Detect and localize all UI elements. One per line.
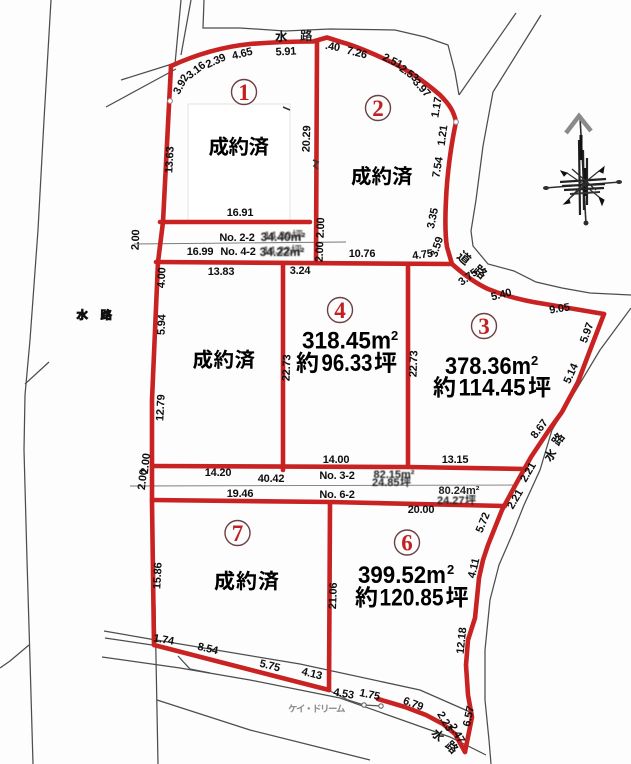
svg-text:120.85: 120.85	[380, 585, 444, 612]
svg-text:10.76: 10.76	[349, 248, 376, 260]
svg-text:5.94: 5.94	[155, 313, 168, 335]
svg-text:2.00: 2.00	[130, 229, 143, 250]
svg-text:19.46: 19.46	[227, 488, 254, 500]
svg-text:114.45: 114.45	[459, 375, 526, 402]
svg-text:14.00: 14.00	[323, 454, 350, 466]
svg-text:20.00: 20.00	[408, 504, 435, 516]
svg-text:6: 6	[401, 531, 413, 556]
svg-text:14.30: 14.30	[264, 230, 292, 242]
svg-text:2.00: 2.00	[314, 241, 327, 262]
svg-text:3: 3	[478, 314, 490, 339]
svg-text:40.42: 40.42	[258, 473, 285, 485]
svg-text:No. 4-2: No. 4-2	[220, 246, 255, 258]
svg-text:13.83: 13.83	[208, 266, 235, 278]
svg-text:No. 3-2: No. 3-2	[319, 470, 354, 482]
svg-text:16.91: 16.91	[227, 207, 254, 219]
svg-text:2: 2	[447, 562, 454, 577]
svg-text:21.06: 21.06	[327, 582, 340, 609]
svg-text:96.33: 96.33	[322, 350, 373, 377]
svg-text:3.24: 3.24	[290, 265, 312, 277]
svg-text:No. 6-2: No. 6-2	[319, 489, 354, 501]
svg-text:13.63: 13.63	[163, 146, 176, 173]
svg-text:16.99: 16.99	[187, 246, 214, 258]
svg-text:7: 7	[232, 521, 244, 546]
svg-text:2.00: 2.00	[139, 453, 153, 475]
svg-text:24.27: 24.27	[437, 495, 465, 507]
svg-text:2: 2	[391, 328, 398, 343]
svg-text:22.73: 22.73	[281, 354, 294, 381]
svg-text:4: 4	[334, 298, 346, 323]
svg-text:2.00: 2.00	[315, 217, 328, 238]
svg-text:No. 2-2: No. 2-2	[219, 232, 254, 244]
svg-text:20.29: 20.29	[301, 125, 314, 152]
svg-text:14.20: 14.20	[205, 467, 232, 479]
svg-text:.40: .40	[324, 40, 341, 54]
svg-text:2: 2	[531, 353, 538, 368]
svg-text:22.73: 22.73	[408, 350, 421, 377]
svg-text:4.00: 4.00	[155, 267, 168, 288]
svg-text:1: 1	[238, 80, 250, 105]
svg-text:5.91: 5.91	[275, 45, 296, 58]
svg-text:15.86: 15.86	[151, 562, 164, 589]
svg-text:2: 2	[372, 96, 384, 121]
svg-text:12.79: 12.79	[154, 394, 167, 421]
svg-text:13.15: 13.15	[442, 454, 469, 466]
svg-text:24.85: 24.85	[372, 477, 400, 489]
svg-text:14.22: 14.22	[263, 245, 291, 257]
